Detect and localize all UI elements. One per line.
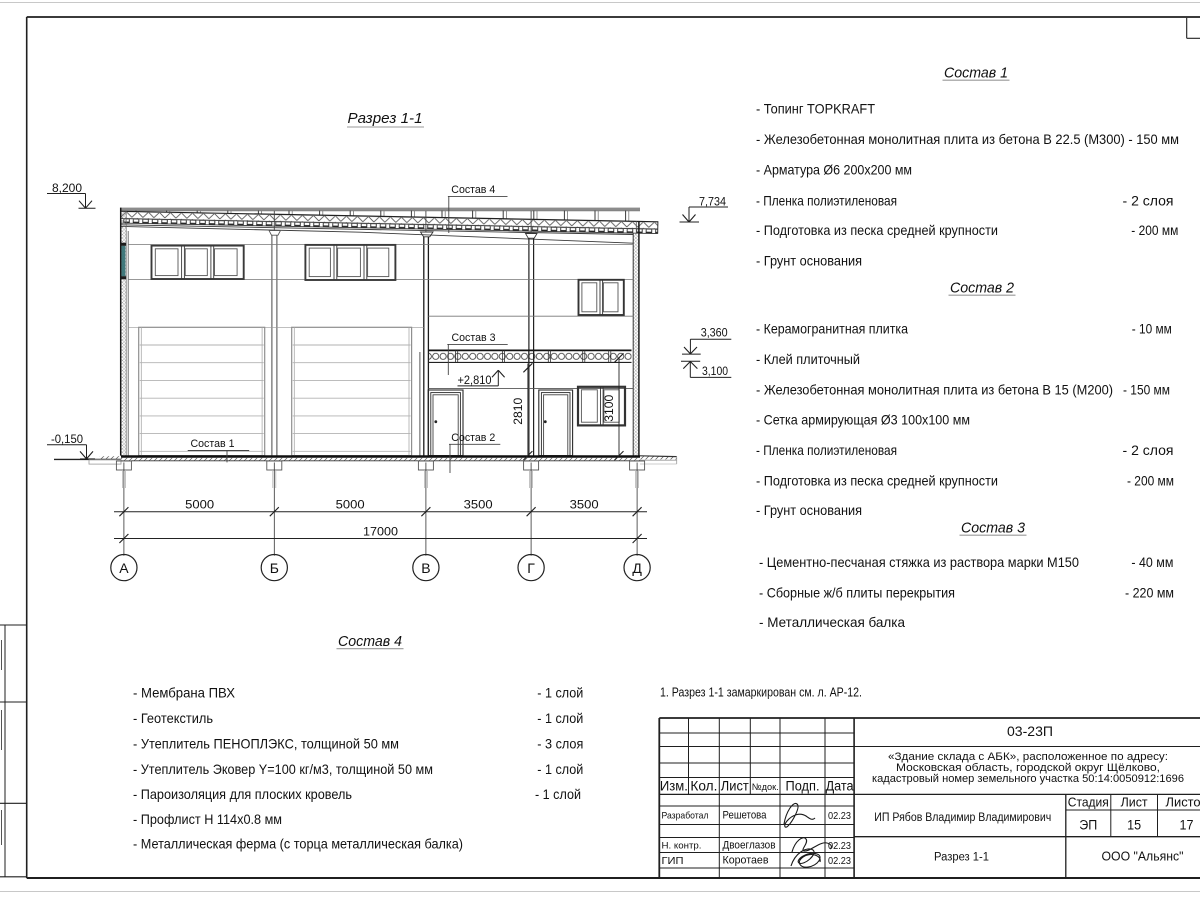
- svg-text:- Пароизоляция для плоских кро: - Пароизоляция для плоских кровель: [133, 786, 352, 802]
- svg-text:Состав 1: Состав 1: [191, 438, 235, 450]
- svg-text:- Грунт основания: - Грунт основания: [756, 252, 862, 268]
- svg-text:02.23: 02.23: [828, 855, 851, 867]
- svg-text:- Сетка армирующая Ø3 100х100: - Сетка армирующая Ø3 100х100 мм: [756, 412, 970, 428]
- svg-text:- 200 мм: - 200 мм: [1131, 222, 1178, 238]
- svg-text:- Пленка полиэтиленовая: - Пленка полиэтиленовая: [756, 193, 897, 209]
- svg-text:Состав 2: Состав 2: [950, 280, 1015, 297]
- svg-text:- Железобетонная монолитная п: - Железобетонная монолитная плита из бет…: [756, 381, 1113, 397]
- svg-text:03-23П: 03-23П: [1007, 724, 1053, 739]
- svg-text:1. Разрез 1-1 замаркирован см.: 1. Разрез 1-1 замаркирован см. л. АР-12.: [660, 685, 862, 700]
- svg-text:Состав 4: Состав 4: [338, 633, 402, 650]
- svg-text:02.23: 02.23: [828, 810, 851, 822]
- svg-text:- 220 мм: - 220 мм: [1125, 585, 1174, 601]
- svg-text:3500: 3500: [570, 498, 599, 512]
- svg-text:5000: 5000: [185, 498, 214, 512]
- svg-text:3,100: 3,100: [702, 366, 728, 378]
- svg-text:Решетова: Решетова: [723, 810, 768, 822]
- svg-text:3,360: 3,360: [701, 328, 728, 340]
- svg-text:Коротаев: Коротаев: [723, 855, 769, 867]
- svg-text:В: В: [421, 560, 430, 576]
- svg-text:Б: Б: [270, 560, 279, 576]
- svg-text:3100: 3100: [604, 395, 616, 422]
- svg-text:3500: 3500: [464, 498, 493, 512]
- svg-text:Состав 3: Состав 3: [452, 332, 496, 344]
- svg-text:Состав 4: Состав 4: [451, 184, 495, 196]
- svg-text:Кол.: Кол.: [690, 779, 717, 794]
- svg-text:- Керамогранитная плитка: - Керамогранитная плитка: [756, 321, 908, 337]
- svg-text:- 2 слоя: - 2 слоя: [1123, 193, 1174, 209]
- svg-text:- Топинг TOPKRAFT: - Топинг TOPKRAFT: [756, 101, 875, 117]
- svg-text:- 10 мм: - 10 мм: [1132, 321, 1172, 337]
- svg-text:- Металлическая ферма (с торца: - Металлическая ферма (с торца металличе…: [133, 836, 463, 852]
- svg-text:Д: Д: [632, 560, 642, 576]
- svg-text:- 1 слой: - 1 слой: [537, 685, 583, 701]
- svg-text:Н. контр.: Н. контр.: [662, 841, 702, 852]
- svg-text:Изм.: Изм.: [660, 779, 688, 794]
- svg-text:ИП Рябов Владимир Владимирович: ИП Рябов Владимир Владимирович: [874, 812, 1051, 824]
- svg-text:Дата: Дата: [826, 779, 854, 794]
- svg-text:Листов: Листов: [1166, 795, 1200, 810]
- svg-text:- Утеплитель ПЕНОПЛЭКС, толщин: - Утеплитель ПЕНОПЛЭКС, толщиной 50 мм: [133, 735, 399, 751]
- svg-text:- 150 мм: - 150 мм: [1123, 381, 1170, 397]
- svg-text:- Пленка полиэтиленовая: - Пленка полиэтиленовая: [756, 442, 897, 458]
- svg-text:Подп.: Подп.: [786, 779, 820, 794]
- svg-text:Состав 3: Состав 3: [961, 520, 1026, 537]
- svg-text:17: 17: [1180, 818, 1194, 833]
- svg-text:А: А: [119, 560, 129, 576]
- svg-text:- Утеплитель Эковер Y=100 кг/м: - Утеплитель Эковер Y=100 кг/м3, толщино…: [133, 761, 433, 777]
- svg-text:- Грунт основания: - Грунт основания: [756, 502, 862, 518]
- svg-text:- Мембрана ПВХ: - Мембрана ПВХ: [133, 685, 236, 701]
- svg-text:- 40 мм: - 40 мм: [1131, 554, 1173, 570]
- svg-text:- 3 слоя: - 3 слоя: [537, 735, 583, 751]
- svg-text:ЭП: ЭП: [1079, 818, 1097, 833]
- svg-text:Г: Г: [527, 560, 535, 576]
- svg-text:- 1 слой: - 1 слой: [537, 761, 583, 777]
- svg-text:ООО "Альянс": ООО "Альянс": [1102, 850, 1184, 864]
- svg-text:Лист: Лист: [1121, 795, 1148, 810]
- svg-text:Состав 1: Состав 1: [944, 65, 1008, 82]
- svg-text:- Металлическая балка: - Металлическая балка: [759, 614, 905, 630]
- svg-text:- 1 слой: - 1 слой: [537, 710, 583, 726]
- svg-text:Стадия: Стадия: [1068, 795, 1109, 810]
- svg-text:- Клей плиточный: - Клей плиточный: [756, 351, 860, 367]
- svg-text:- Подготовка из песка средней: - Подготовка из песка средней крупности: [756, 222, 998, 238]
- svg-text:17000: 17000: [363, 524, 398, 538]
- svg-text:кадастровый номер земельного у: кадастровый номер земельного участка 50:…: [872, 773, 1184, 785]
- svg-text:2810: 2810: [513, 398, 525, 425]
- svg-text:- Арматура Ø6 200х200 мм: - Арматура Ø6 200х200 мм: [756, 161, 912, 177]
- svg-text:Состав 2: Состав 2: [451, 432, 495, 444]
- svg-text:ГИП: ГИП: [662, 855, 684, 867]
- svg-text:Разработал: Разработал: [662, 811, 709, 822]
- svg-text:Двоеглазов: Двоеглазов: [723, 840, 776, 852]
- svg-text:- Подготовка из песка средней: - Подготовка из песка средней крупности: [756, 472, 998, 488]
- svg-text:5000: 5000: [336, 498, 365, 512]
- svg-text:- 200 мм: - 200 мм: [1127, 472, 1174, 488]
- svg-text:№док.: №док.: [752, 782, 779, 793]
- svg-text:15: 15: [1127, 818, 1141, 833]
- svg-text:- 1 слой: - 1 слой: [535, 786, 581, 802]
- svg-text:- Геотекстиль: - Геотекстиль: [133, 710, 213, 726]
- svg-text:- Профлист Н 114х0.8 мм: - Профлист Н 114х0.8 мм: [133, 811, 282, 827]
- svg-text:- Сборные ж/б плиты перекрытия: - Сборные ж/б плиты перекрытия: [759, 585, 955, 601]
- svg-text:Разрез 1-1: Разрез 1-1: [348, 111, 423, 127]
- svg-text:Разрез 1-1: Разрез 1-1: [934, 852, 989, 864]
- svg-text:Лист: Лист: [721, 779, 749, 794]
- svg-text:- 2 слоя: - 2 слоя: [1123, 442, 1174, 458]
- svg-text:- Цементно-песчаная стяжка из: - Цементно-песчаная стяжка из раствора м…: [759, 554, 1079, 570]
- svg-text:- Железобетонная монолитная п: - Железобетонная монолитная плита из бет…: [756, 131, 1179, 147]
